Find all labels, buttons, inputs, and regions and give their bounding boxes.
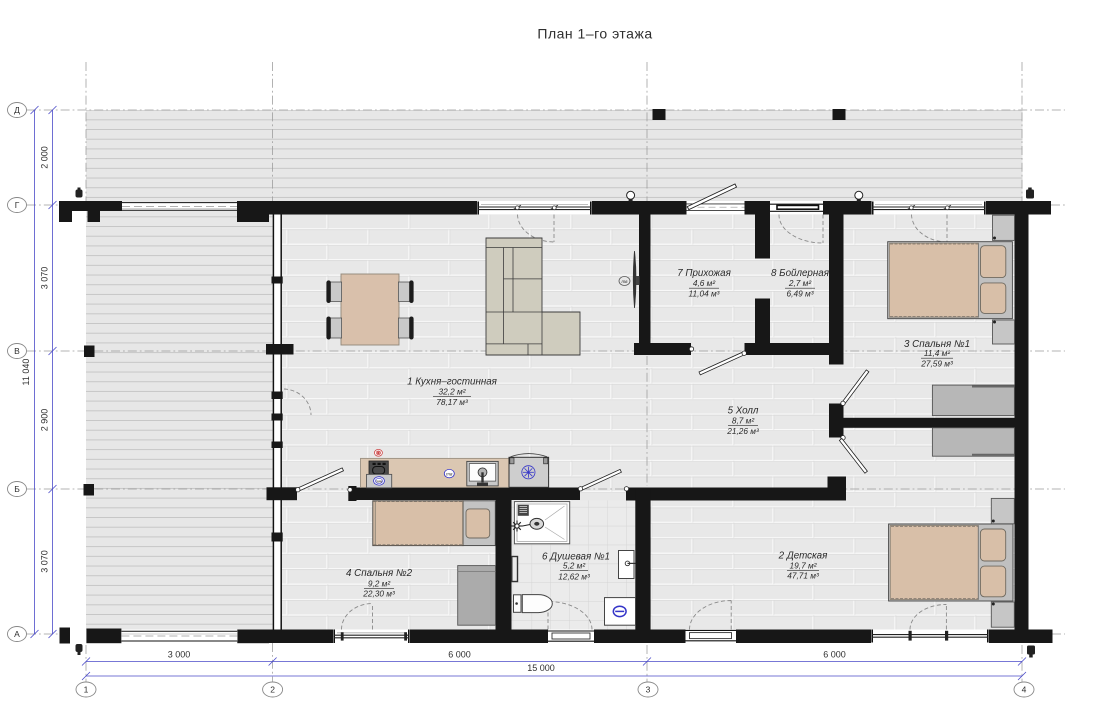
svg-text:План 1–го этажа: План 1–го этажа: [537, 26, 652, 42]
svg-text:4: 4: [1022, 685, 1027, 695]
svg-text:2: 2: [270, 685, 275, 695]
svg-text:В: В: [14, 346, 20, 356]
svg-text:32,2 м²: 32,2 м²: [439, 387, 466, 397]
svg-text:47,71 м³: 47,71 м³: [787, 571, 819, 581]
svg-text:пмм: пмм: [376, 479, 383, 483]
svg-text:4 Спальня №2: 4 Спальня №2: [346, 568, 413, 579]
svg-text:А: А: [14, 629, 20, 639]
svg-text:2 000: 2 000: [40, 146, 50, 169]
svg-text:Б: Б: [14, 484, 20, 494]
svg-text:3 000: 3 000: [168, 650, 191, 660]
svg-text:3: 3: [646, 685, 651, 695]
svg-text:11 040: 11 040: [21, 359, 31, 386]
svg-text:3 070: 3 070: [40, 550, 50, 573]
svg-text:6 000: 6 000: [448, 650, 471, 660]
svg-text:Г: Г: [15, 200, 20, 210]
svg-text:4,6 м²: 4,6 м²: [693, 278, 716, 288]
svg-text:22,30 м³: 22,30 м³: [362, 589, 395, 599]
svg-text:11,4 м²: 11,4 м²: [924, 348, 951, 358]
svg-text:19,7 м²: 19,7 м²: [790, 561, 817, 571]
svg-text:2,7 м²: 2,7 м²: [788, 278, 812, 288]
svg-text:Д: Д: [14, 105, 20, 115]
svg-text:78,17 м³: 78,17 м³: [436, 397, 468, 407]
svg-text:6,49 м³: 6,49 м³: [787, 289, 814, 299]
svg-text:11,04 м³: 11,04 м³: [689, 289, 720, 299]
svg-text:3 070: 3 070: [40, 267, 50, 290]
svg-text:12,62 м³: 12,62 м³: [558, 572, 590, 582]
svg-text:8,7 м²: 8,7 м²: [732, 416, 755, 426]
svg-text:21,26 м³: 21,26 м³: [726, 426, 759, 436]
svg-text:6 000: 6 000: [823, 650, 846, 660]
svg-text:9,2 м²: 9,2 м²: [368, 579, 391, 589]
svg-text:27,59 м³: 27,59 м³: [920, 359, 953, 369]
svg-text:1: 1: [84, 685, 89, 695]
svg-text:тв: тв: [446, 472, 453, 477]
svg-text:5,2 м²: 5,2 м²: [563, 561, 586, 571]
svg-text:2 900: 2 900: [40, 409, 50, 432]
svg-text:15 000: 15 000: [527, 663, 555, 673]
svg-text:тв: тв: [621, 279, 628, 284]
